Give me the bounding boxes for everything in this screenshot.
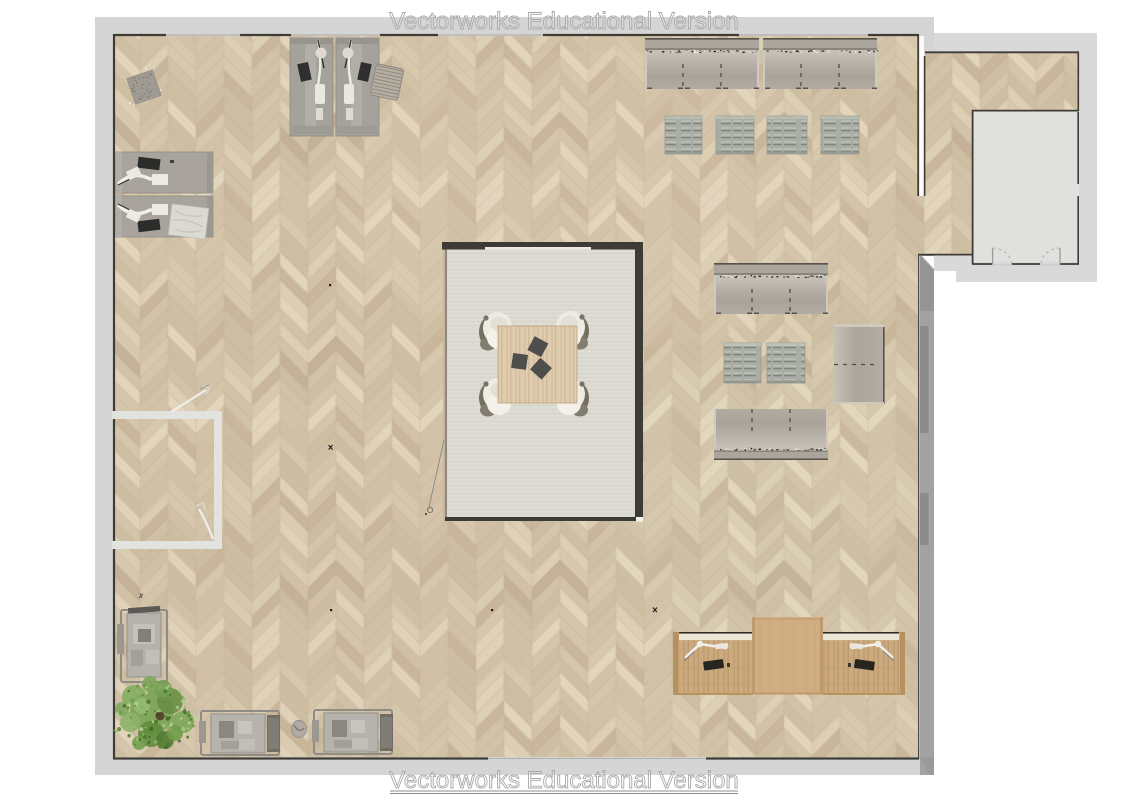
svg-text:Vectorworks Educational Versio: Vectorworks Educational Version — [389, 767, 739, 794]
svg-text:Vectorworks Educational Versio: Vectorworks Educational Version — [389, 8, 739, 35]
